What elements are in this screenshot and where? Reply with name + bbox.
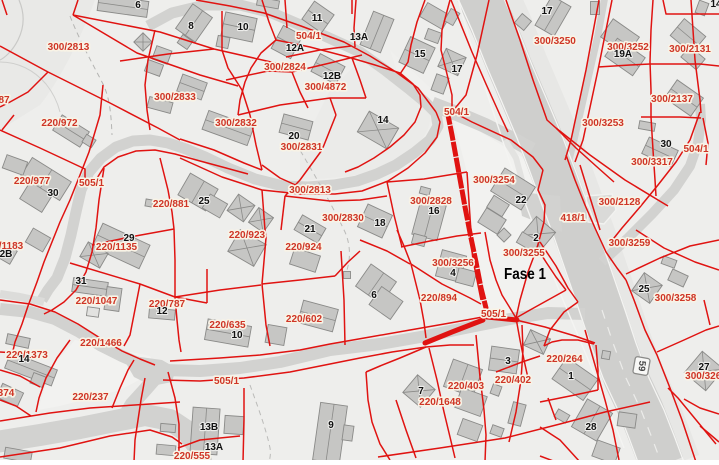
svg-text:220/1466: 220/1466 xyxy=(80,338,122,349)
svg-text:4: 4 xyxy=(450,268,456,279)
svg-text:300/3250: 300/3250 xyxy=(534,36,576,47)
svg-text:14: 14 xyxy=(18,354,30,365)
svg-text:505/1: 505/1 xyxy=(214,376,239,387)
svg-text:30: 30 xyxy=(47,188,59,199)
svg-text:14: 14 xyxy=(710,0,719,10)
svg-text:300/2833: 300/2833 xyxy=(154,92,196,103)
svg-text:220/894: 220/894 xyxy=(421,293,458,304)
svg-text:18: 18 xyxy=(374,218,386,229)
svg-text:504/1: 504/1 xyxy=(296,31,321,42)
svg-text:220/924: 220/924 xyxy=(285,242,322,253)
svg-text:31: 31 xyxy=(75,276,87,287)
svg-text:2: 2 xyxy=(533,233,539,244)
svg-text:220/923: 220/923 xyxy=(229,230,266,241)
svg-text:220/977: 220/977 xyxy=(14,176,51,187)
svg-text:220/1047: 220/1047 xyxy=(76,296,118,307)
svg-text:300/2128: 300/2128 xyxy=(599,197,641,208)
svg-text:13A: 13A xyxy=(205,442,223,453)
svg-text:2B: 2B xyxy=(0,249,12,260)
svg-text:300/3254: 300/3254 xyxy=(473,175,515,186)
svg-text:Fase 1: Fase 1 xyxy=(504,266,546,283)
svg-text:28: 28 xyxy=(585,422,597,433)
svg-text:14: 14 xyxy=(377,115,389,126)
svg-text:300/4872: 300/4872 xyxy=(305,82,347,93)
svg-text:12: 12 xyxy=(156,306,168,317)
svg-text:504/1: 504/1 xyxy=(444,107,469,118)
svg-text:220/1648: 220/1648 xyxy=(419,397,461,408)
svg-text:6: 6 xyxy=(371,290,377,301)
svg-text:220/403: 220/403 xyxy=(448,381,485,392)
svg-text:16: 16 xyxy=(428,206,440,217)
svg-text:300/2832: 300/2832 xyxy=(215,118,257,129)
svg-text:22: 22 xyxy=(515,195,527,206)
svg-text:59: 59 xyxy=(636,360,648,371)
svg-text:300/3255: 300/3255 xyxy=(503,248,545,259)
svg-text:220/237: 220/237 xyxy=(72,392,109,403)
svg-text:25: 25 xyxy=(638,284,650,295)
svg-text:20: 20 xyxy=(288,131,300,142)
svg-text:220/972: 220/972 xyxy=(41,118,78,129)
svg-text:220/881: 220/881 xyxy=(153,199,190,210)
svg-text:505/1: 505/1 xyxy=(481,309,506,320)
svg-text:300/2824: 300/2824 xyxy=(264,62,306,73)
svg-text:300/3317: 300/3317 xyxy=(631,157,673,168)
svg-text:13B: 13B xyxy=(200,422,218,433)
svg-text:300/3253: 300/3253 xyxy=(582,118,624,129)
svg-text:25: 25 xyxy=(198,196,210,207)
svg-text:220/602: 220/602 xyxy=(286,314,323,325)
svg-text:12B: 12B xyxy=(323,71,341,82)
svg-text:7: 7 xyxy=(418,386,424,397)
svg-text:300/2830: 300/2830 xyxy=(322,213,364,224)
svg-text:12A: 12A xyxy=(286,43,304,54)
svg-text:21: 21 xyxy=(304,224,316,235)
svg-text:15: 15 xyxy=(414,49,426,60)
svg-text:418/1: 418/1 xyxy=(560,213,585,224)
svg-text:300/3259: 300/3259 xyxy=(609,238,651,249)
svg-text:17: 17 xyxy=(451,64,463,75)
svg-text:300/2813: 300/2813 xyxy=(48,42,90,53)
svg-text:6: 6 xyxy=(135,0,141,11)
svg-text:300/2131: 300/2131 xyxy=(669,44,711,55)
svg-text:505/1: 505/1 xyxy=(79,178,104,189)
svg-text:9: 9 xyxy=(328,420,334,431)
svg-text:19A: 19A xyxy=(614,49,632,60)
svg-text:10: 10 xyxy=(231,330,243,341)
svg-text:8: 8 xyxy=(188,21,194,32)
svg-text:10: 10 xyxy=(237,22,249,33)
svg-text:300/2137: 300/2137 xyxy=(651,94,693,105)
svg-text:27: 27 xyxy=(698,362,710,373)
svg-text:504/1: 504/1 xyxy=(683,144,708,155)
svg-text:13A: 13A xyxy=(350,32,368,43)
svg-text:220/264: 220/264 xyxy=(546,354,583,365)
svg-text:300/3258: 300/3258 xyxy=(655,293,697,304)
svg-text:17: 17 xyxy=(541,6,553,17)
svg-text:300/2813: 300/2813 xyxy=(289,185,331,196)
svg-text:374: 374 xyxy=(0,388,15,399)
svg-text:11: 11 xyxy=(312,13,323,24)
svg-text:29: 29 xyxy=(123,233,135,244)
svg-text:3: 3 xyxy=(505,356,511,367)
svg-text:87: 87 xyxy=(0,95,10,106)
svg-text:300/2831: 300/2831 xyxy=(281,142,323,153)
svg-text:30: 30 xyxy=(660,139,672,150)
svg-text:220/402: 220/402 xyxy=(495,375,532,386)
svg-text:1: 1 xyxy=(568,371,574,382)
